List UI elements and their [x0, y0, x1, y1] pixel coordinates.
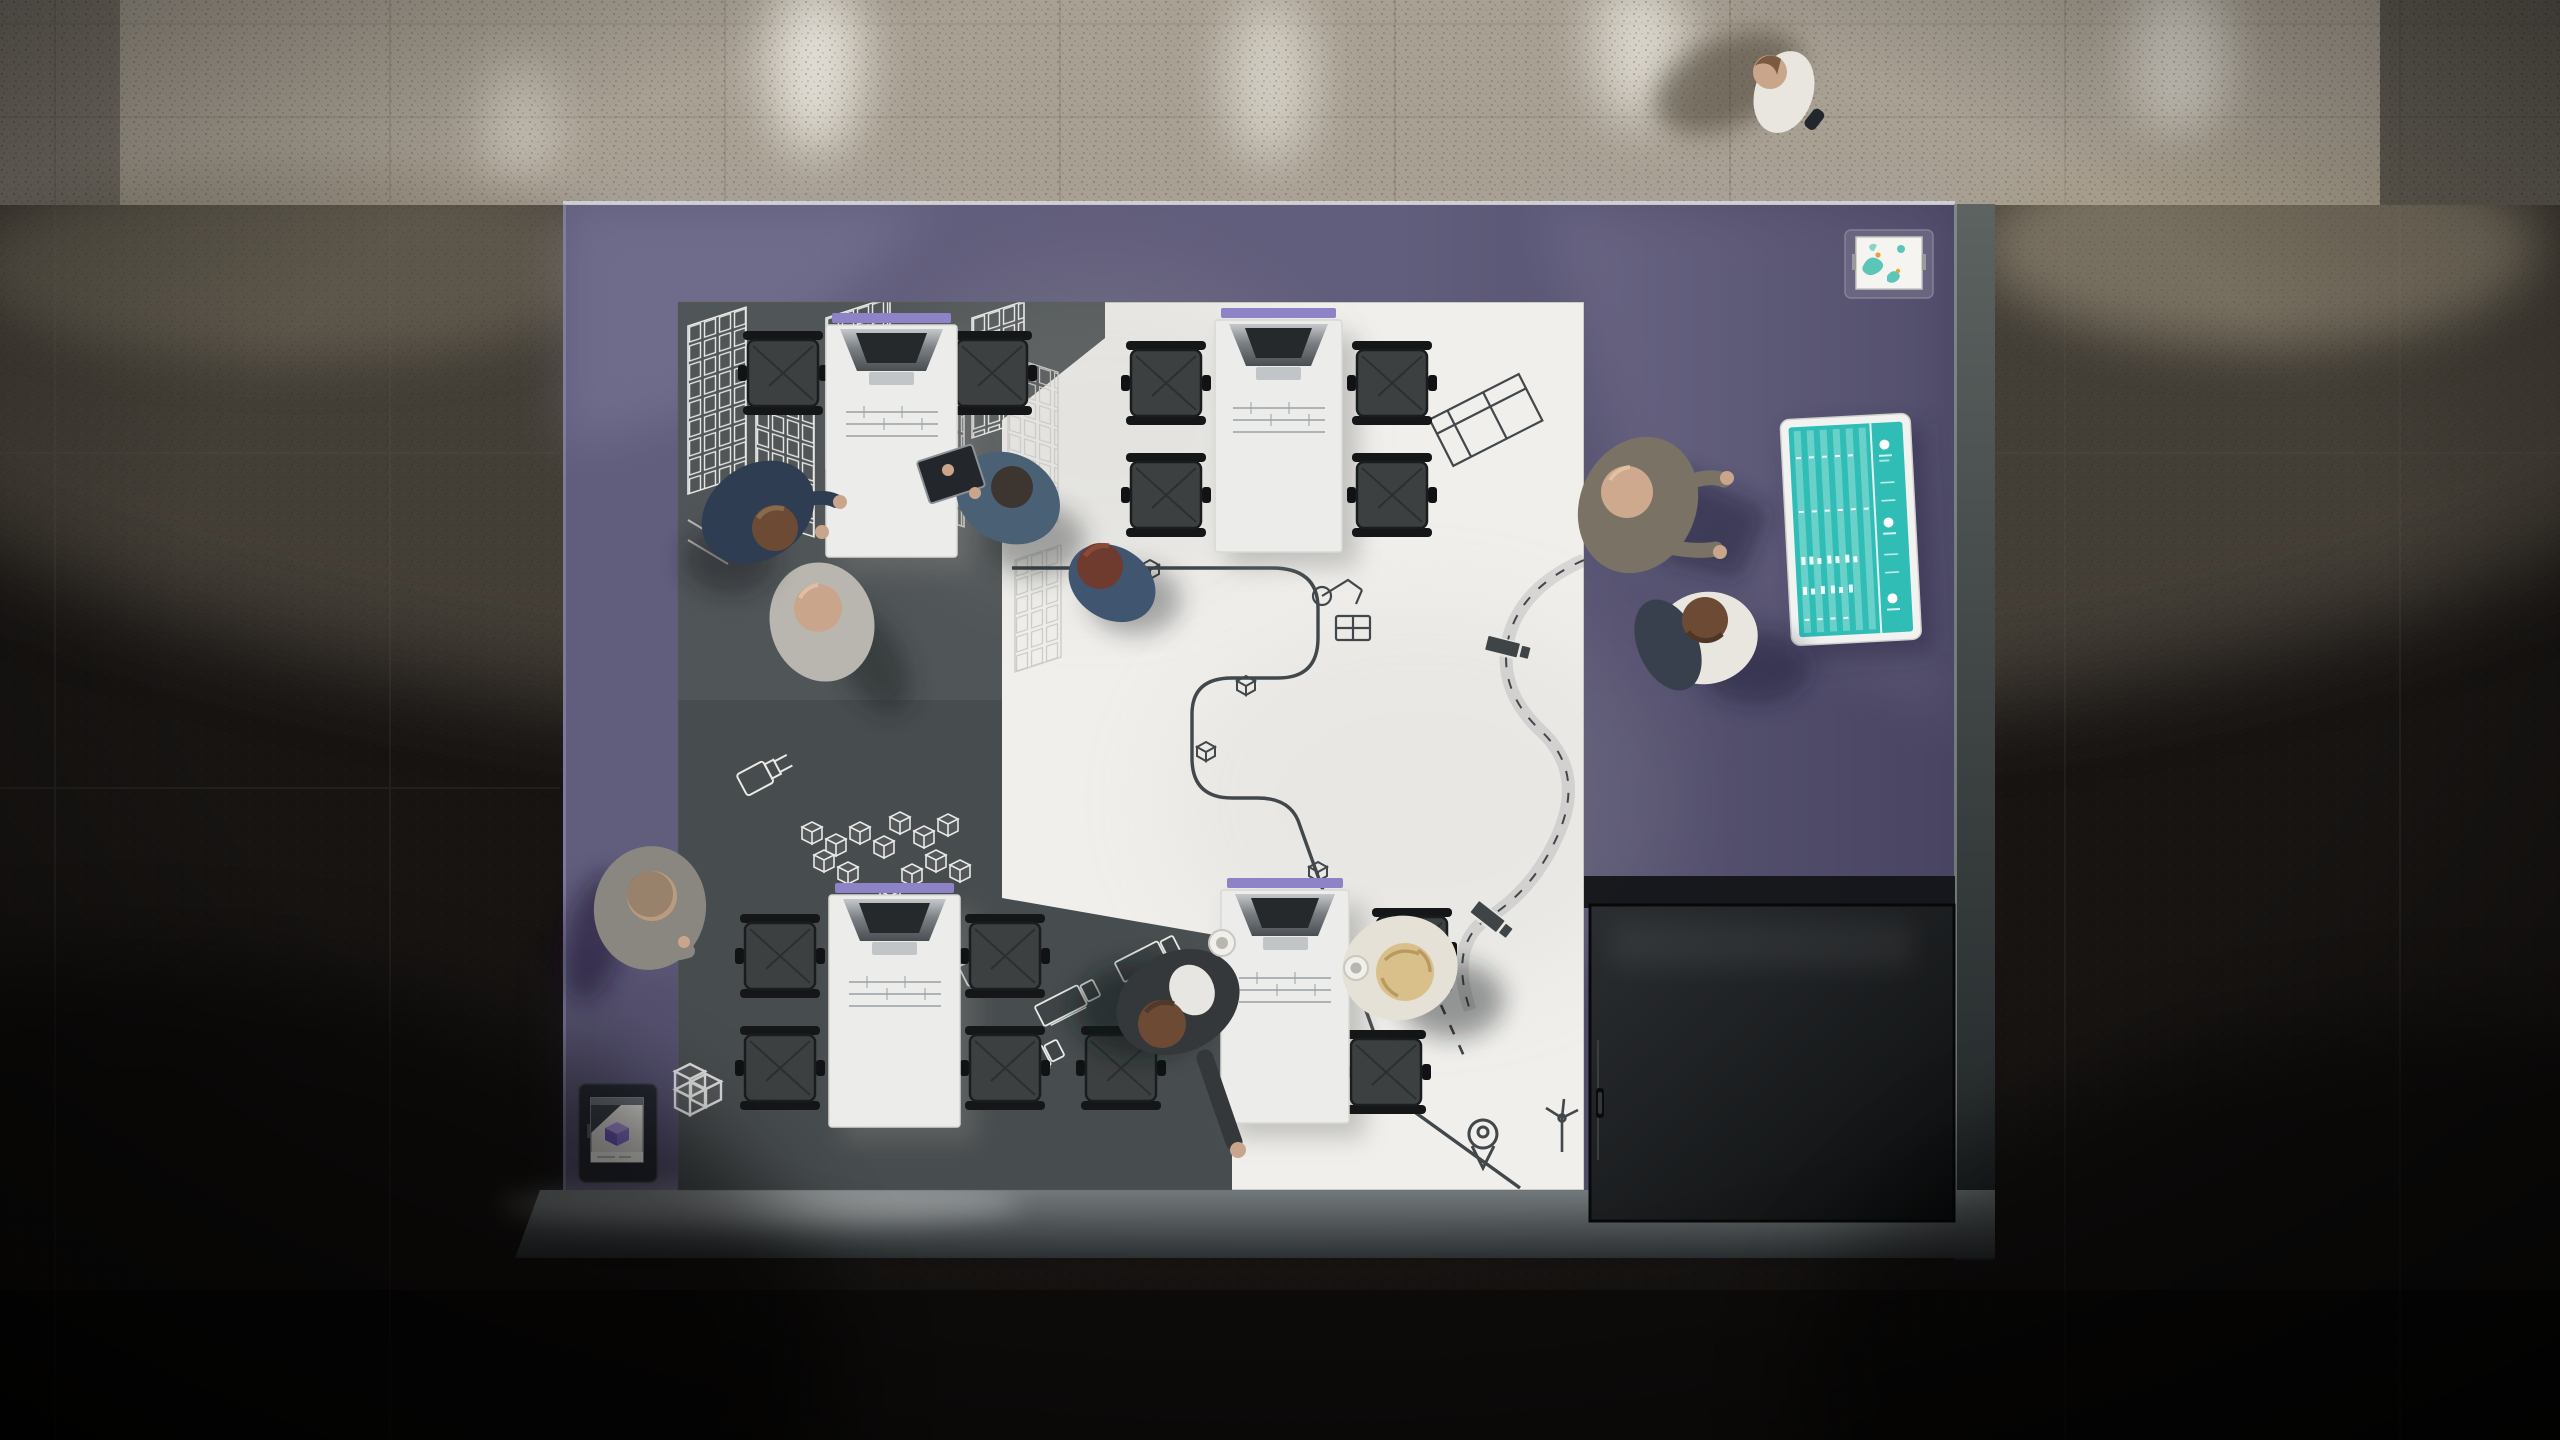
scene-render — [0, 0, 2560, 1440]
screenshot-root — [0, 0, 2560, 1440]
bottom-fade — [0, 1290, 2560, 1440]
